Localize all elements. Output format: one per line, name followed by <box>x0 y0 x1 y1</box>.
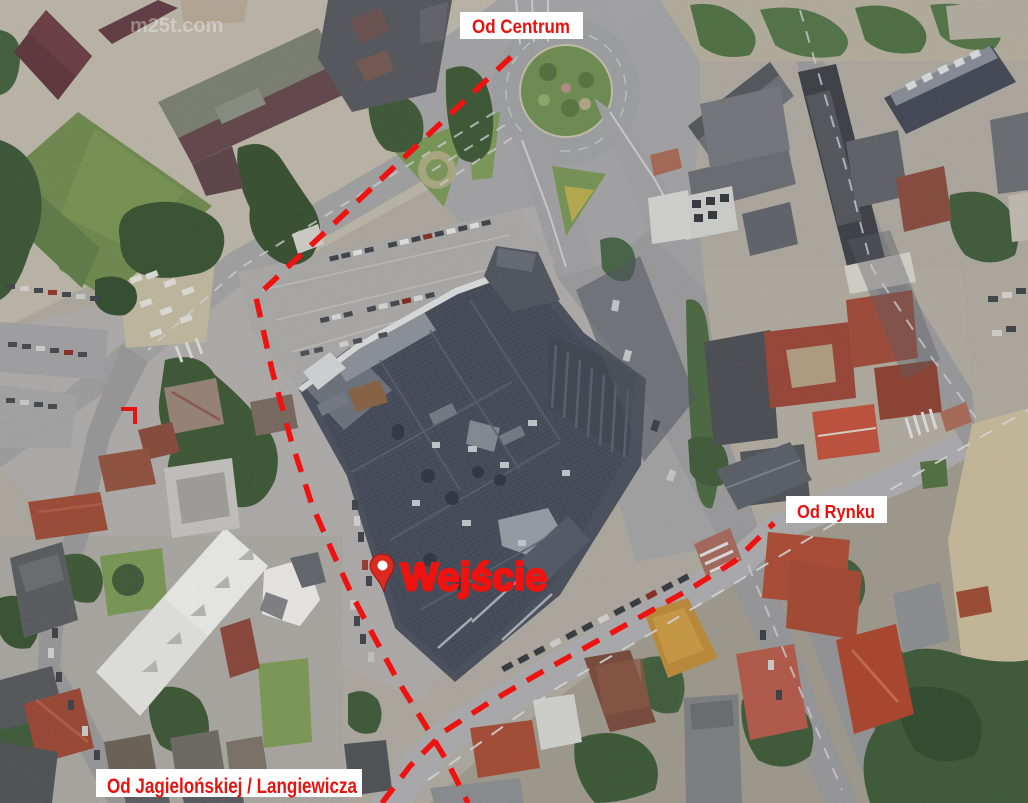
svg-text:Od Jagielońskiej / Langiewicza: Od Jagielońskiej / Langiewicza <box>107 775 357 798</box>
svg-text:Od Centrum: Od Centrum <box>472 17 570 38</box>
svg-text:Od Rynku: Od Rynku <box>797 502 875 522</box>
svg-text:m25t.com: m25t.com <box>130 15 223 37</box>
svg-text:Wejście: Wejście <box>401 556 547 599</box>
